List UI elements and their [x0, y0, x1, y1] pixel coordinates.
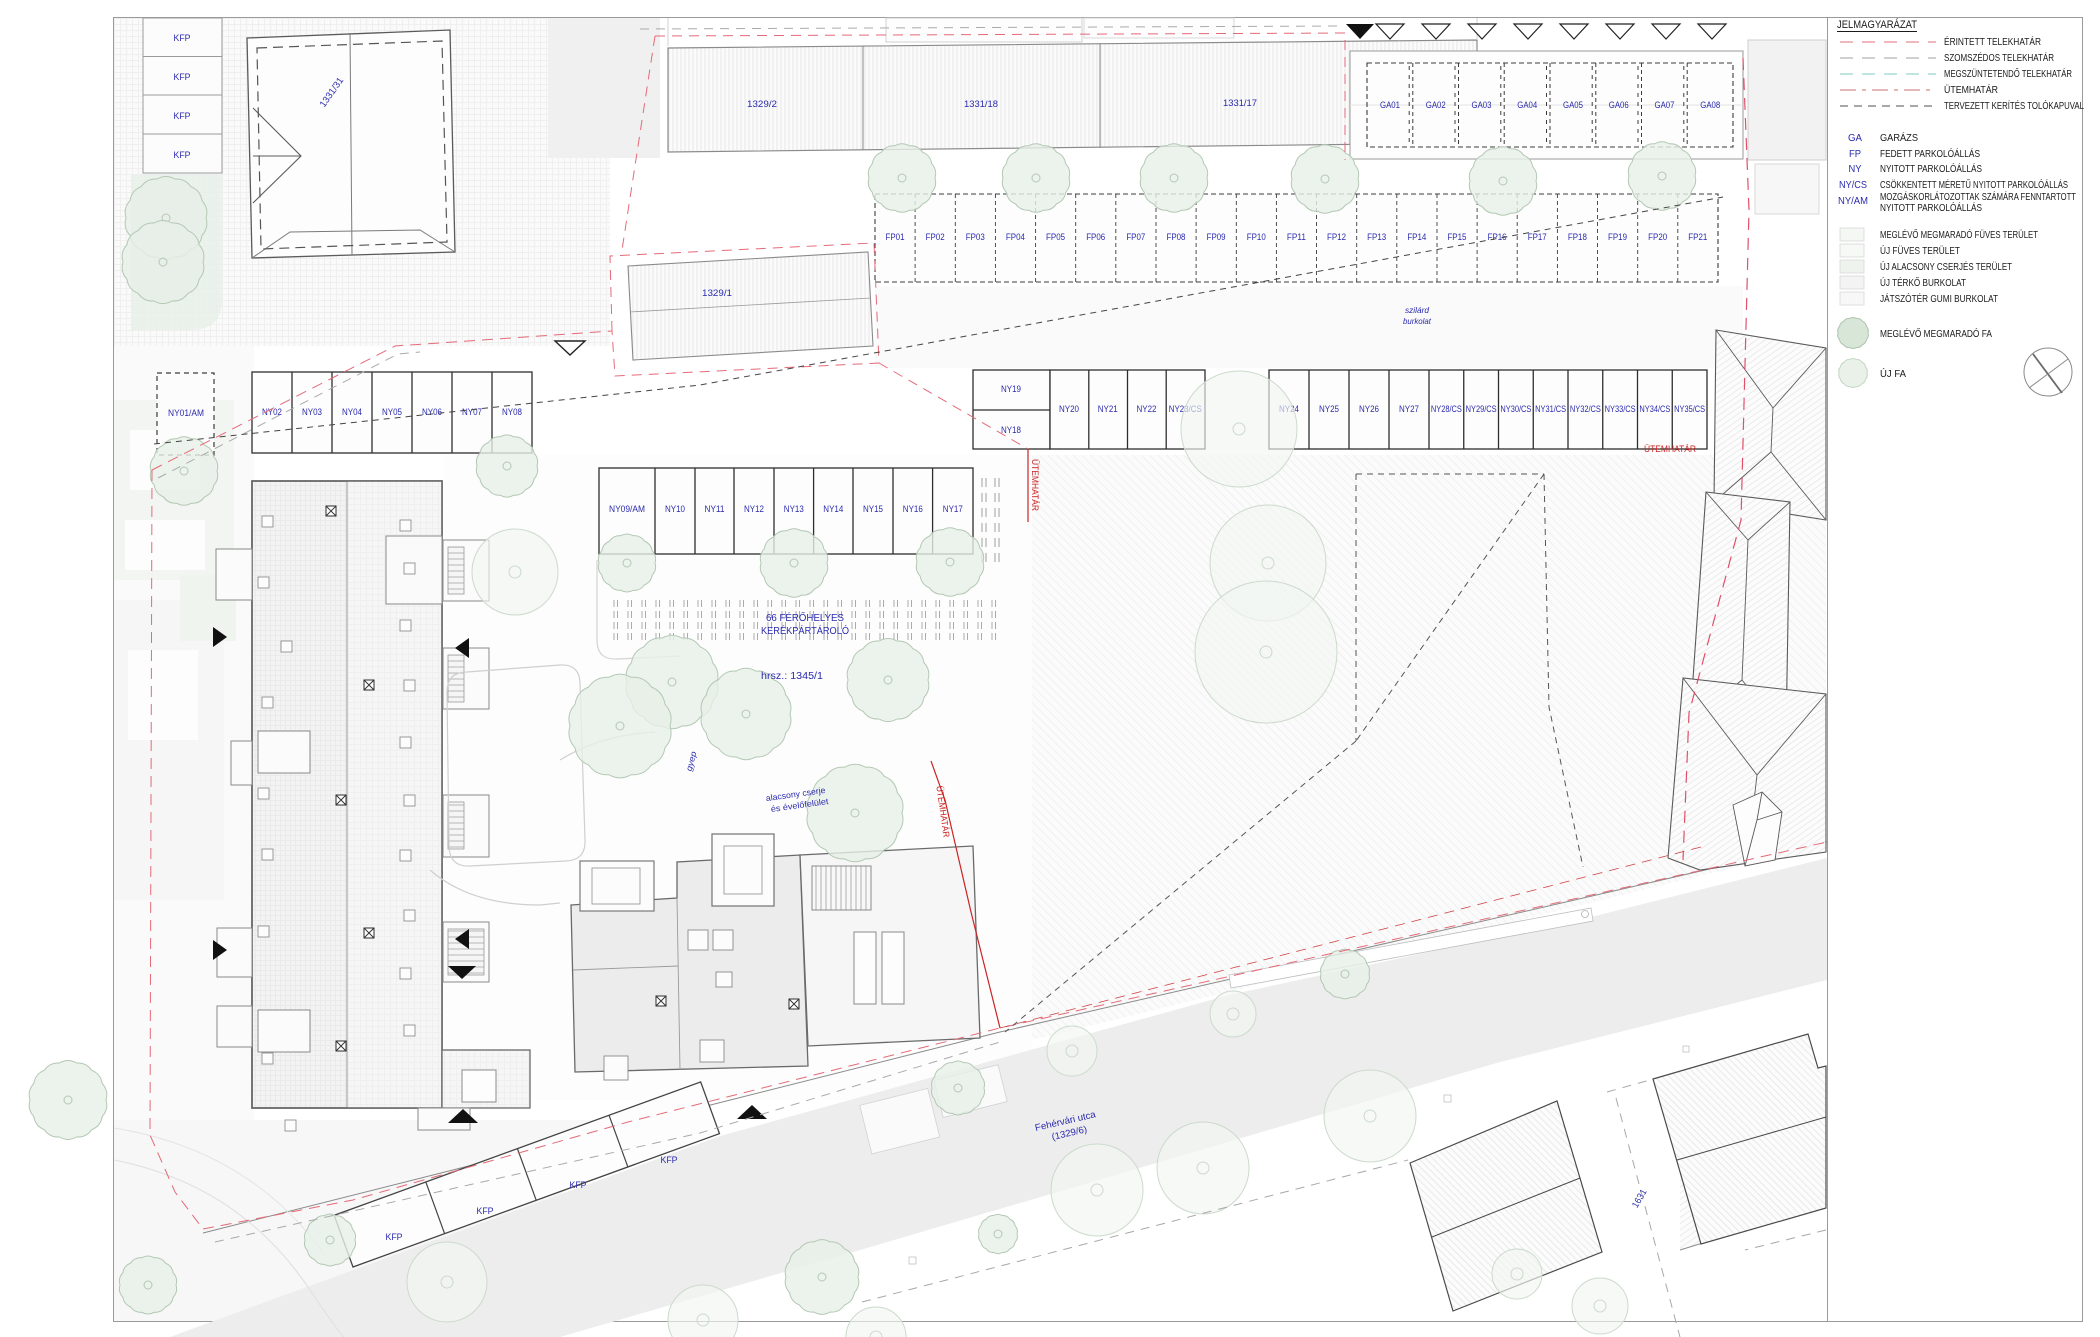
svg-text:NY28/CS: NY28/CS	[1431, 404, 1462, 414]
svg-text:NY10: NY10	[665, 504, 685, 514]
svg-text:JELMAGYARÁZAT: JELMAGYARÁZAT	[1837, 18, 1917, 31]
svg-text:ÚJ FA: ÚJ FA	[1880, 367, 1906, 380]
svg-text:hrsz.: 1345/1: hrsz.: 1345/1	[761, 671, 823, 682]
svg-text:NY17: NY17	[943, 504, 963, 514]
svg-text:CSÖKKENTETT MÉRETŰ NYITOTT PAR: CSÖKKENTETT MÉRETŰ NYITOTT PARKOLÓÁLLÁS	[1880, 177, 2068, 191]
svg-text:FP08: FP08	[1166, 232, 1185, 242]
svg-text:GA06: GA06	[1609, 100, 1629, 110]
svg-text:NY34/CS: NY34/CS	[1639, 404, 1670, 414]
svg-text:MOZGÁSKORLÁTOZOTTAK SZÁMÁRA FE: MOZGÁSKORLÁTOZOTTAK SZÁMÁRA FENNTARTOTT	[1880, 190, 2076, 203]
svg-text:66 FÉRŐHELYES: 66 FÉRŐHELYES	[766, 610, 844, 624]
svg-text:NY16: NY16	[903, 504, 923, 514]
svg-text:NYITOTT PARKOLÓÁLLÁS: NYITOTT PARKOLÓÁLLÁS	[1880, 162, 1982, 175]
svg-text:ÜTEMHATÁR: ÜTEMHATÁR	[1030, 459, 1040, 511]
svg-text:GA02: GA02	[1426, 100, 1446, 110]
svg-text:NY12: NY12	[744, 504, 764, 514]
svg-text:JÁTSZÓTÉR GUMI BURKOLAT: JÁTSZÓTÉR GUMI BURKOLAT	[1880, 292, 1998, 305]
svg-text:GA08: GA08	[1700, 100, 1720, 110]
svg-text:NY35/CS: NY35/CS	[1674, 404, 1705, 414]
svg-text:NY15: NY15	[863, 504, 883, 514]
svg-text:FP07: FP07	[1126, 232, 1145, 242]
svg-text:NY: NY	[1849, 164, 1862, 175]
svg-text:KFP: KFP	[386, 1232, 403, 1242]
svg-text:KFP: KFP	[477, 1206, 494, 1216]
svg-text:NY09/AM: NY09/AM	[609, 504, 645, 514]
svg-text:FP06: FP06	[1086, 232, 1105, 242]
svg-text:FP21: FP21	[1688, 232, 1707, 242]
svg-text:NY04: NY04	[342, 407, 362, 417]
svg-text:NY32/CS: NY32/CS	[1570, 404, 1601, 414]
svg-text:TERVEZETT KERÍTÉS TOLÓKAPUVAL: TERVEZETT KERÍTÉS TOLÓKAPUVAL	[1944, 99, 2084, 112]
svg-text:GA07: GA07	[1655, 100, 1675, 110]
svg-text:ÚJ ALACSONY CSERJÉS TERÜLET: ÚJ ALACSONY CSERJÉS TERÜLET	[1880, 260, 2012, 273]
svg-text:NY18: NY18	[1001, 425, 1021, 435]
svg-text:NY07: NY07	[462, 407, 482, 417]
svg-text:ÜTEMHATÁR: ÜTEMHATÁR	[1644, 444, 1696, 454]
svg-text:MEGLÉVŐ MEGMARADÓ FA: MEGLÉVŐ MEGMARADÓ FA	[1880, 326, 1992, 340]
svg-text:SZOMSZÉDOS TELEKHATÁR: SZOMSZÉDOS TELEKHATÁR	[1944, 51, 2054, 64]
svg-text:NY33/CS: NY33/CS	[1605, 404, 1636, 414]
svg-text:FP09: FP09	[1207, 232, 1226, 242]
svg-text:FP18: FP18	[1568, 232, 1587, 242]
svg-text:NY25: NY25	[1319, 404, 1339, 414]
svg-text:FP04: FP04	[1006, 232, 1025, 242]
svg-text:NY31/CS: NY31/CS	[1535, 404, 1566, 414]
svg-text:NY27: NY27	[1399, 404, 1419, 414]
svg-text:NY22: NY22	[1137, 404, 1157, 414]
svg-text:NY06: NY06	[422, 407, 442, 417]
svg-text:NY03: NY03	[302, 407, 322, 417]
svg-text:MEGSZÜNTETENDŐ TELEKHATÁR: MEGSZÜNTETENDŐ TELEKHATÁR	[1944, 66, 2072, 80]
svg-text:ÚJ FÜVES TERÜLET: ÚJ FÜVES TERÜLET	[1880, 244, 1960, 257]
svg-text:FP01: FP01	[886, 232, 905, 242]
svg-text:FP10: FP10	[1247, 232, 1266, 242]
svg-text:burkolat: burkolat	[1403, 317, 1432, 326]
svg-text:GA03: GA03	[1472, 100, 1492, 110]
svg-text:KFP: KFP	[570, 1180, 587, 1190]
svg-text:FP13: FP13	[1367, 232, 1386, 242]
svg-text:1331/17: 1331/17	[1223, 98, 1257, 109]
svg-text:FP: FP	[1849, 149, 1861, 160]
svg-text:KFP: KFP	[174, 72, 191, 82]
svg-text:MEGLÉVŐ MEGMARADÓ FÜVES TERÜLE: MEGLÉVŐ MEGMARADÓ FÜVES TERÜLET	[1880, 227, 2038, 241]
svg-text:KFP: KFP	[174, 111, 191, 121]
svg-text:GA01: GA01	[1380, 100, 1400, 110]
svg-text:1329/2: 1329/2	[747, 99, 777, 110]
svg-text:NY/CS: NY/CS	[1839, 180, 1867, 191]
svg-text:GA04: GA04	[1517, 100, 1537, 110]
svg-text:NYITOTT PARKOLÓÁLLÁS: NYITOTT PARKOLÓÁLLÁS	[1880, 201, 1982, 214]
svg-text:NY/AM: NY/AM	[1838, 196, 1868, 207]
svg-text:NY29/CS: NY29/CS	[1466, 404, 1497, 414]
svg-text:FP17: FP17	[1528, 232, 1547, 242]
svg-text:FP11: FP11	[1287, 232, 1306, 242]
svg-text:FP05: FP05	[1046, 232, 1065, 242]
svg-text:NY14: NY14	[823, 504, 843, 514]
svg-text:NY30/CS: NY30/CS	[1500, 404, 1531, 414]
svg-text:KFP: KFP	[661, 1155, 678, 1165]
svg-text:KFP: KFP	[174, 33, 191, 43]
svg-text:ÜTEMHATÁR: ÜTEMHATÁR	[1944, 83, 1998, 96]
svg-text:1331/18: 1331/18	[964, 99, 998, 110]
svg-text:NY08: NY08	[502, 407, 522, 417]
svg-text:NY13: NY13	[784, 504, 804, 514]
svg-text:FP02: FP02	[926, 232, 945, 242]
svg-text:FP14: FP14	[1407, 232, 1426, 242]
svg-text:KERÉKPÁRTÁROLÓ: KERÉKPÁRTÁROLÓ	[761, 624, 849, 637]
svg-text:NY20: NY20	[1059, 404, 1079, 414]
svg-text:GARÁZS: GARÁZS	[1880, 131, 1918, 144]
svg-text:GA: GA	[1848, 133, 1862, 144]
svg-text:NY05: NY05	[382, 407, 402, 417]
svg-text:ÚJ TÉRKŐ BURKOLAT: ÚJ TÉRKŐ BURKOLAT	[1880, 275, 1966, 289]
svg-text:KFP: KFP	[174, 150, 191, 160]
svg-text:NY19: NY19	[1001, 384, 1021, 394]
svg-text:NY21: NY21	[1098, 404, 1118, 414]
svg-text:ÉRINTETT TELEKHATÁR: ÉRINTETT TELEKHATÁR	[1944, 35, 2041, 48]
svg-text:FP19: FP19	[1608, 232, 1627, 242]
svg-text:szilárd: szilárd	[1405, 306, 1430, 315]
svg-text:NY11: NY11	[705, 504, 725, 514]
svg-text:FP20: FP20	[1648, 232, 1667, 242]
svg-text:FEDETT PARKOLÓÁLLÁS: FEDETT PARKOLÓÁLLÁS	[1880, 147, 1980, 160]
svg-text:NY01/AM: NY01/AM	[168, 408, 204, 418]
svg-text:FP03: FP03	[966, 232, 985, 242]
svg-text:GA05: GA05	[1563, 100, 1583, 110]
svg-text:NY26: NY26	[1359, 404, 1379, 414]
svg-text:FP12: FP12	[1327, 232, 1346, 242]
svg-text:1329/1: 1329/1	[702, 288, 732, 299]
svg-text:FP15: FP15	[1447, 232, 1466, 242]
